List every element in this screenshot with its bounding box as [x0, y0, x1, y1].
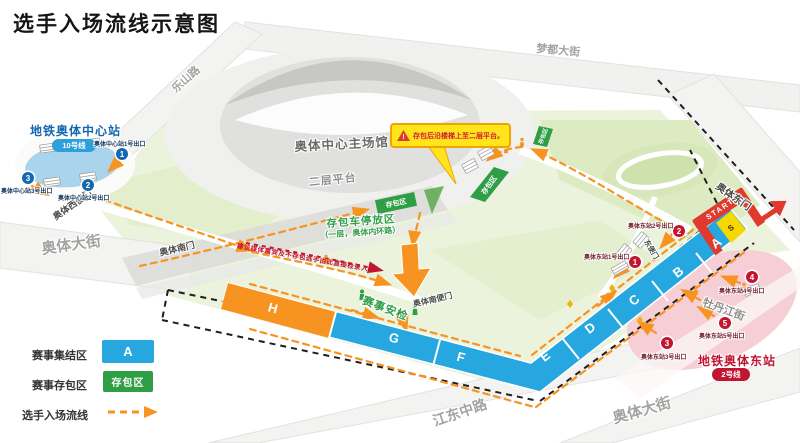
bag-drop-callout-text: 存包后沿楼梯上至二层平台。	[413, 131, 504, 141]
legend-bag-label: 赛事存包区	[32, 377, 87, 393]
metro-east-exit-5-badge: 5	[719, 317, 731, 329]
metro-west-exit-3-label: 奥体中心站3号出口	[1, 186, 52, 195]
metro-west-exit-2-badge: 2	[82, 179, 94, 191]
metro-east-line-badge: 2号线	[712, 368, 750, 381]
metro-east-exit-1-badge: 1	[629, 256, 641, 268]
page-title: 选手入场流线示意图	[13, 8, 220, 38]
metro-east-name: 地铁奥体东站	[698, 352, 776, 369]
metro-east-exit-4-label: 奥体东站4号出口	[719, 286, 764, 295]
bag-drop-callout: ! 存包后沿楼梯上至二层平台。	[390, 123, 511, 148]
legend-flow-arrow	[106, 404, 160, 420]
walking-person-icon	[606, 293, 610, 301]
metro-west-exit-2-label: 奥体中心站2号出口	[58, 193, 109, 202]
warning-triangle-icon: !	[397, 130, 410, 141]
legend-assembly-swatch: A	[102, 340, 154, 363]
metro-west-exit-3-badge: 3	[22, 172, 34, 184]
legend-bag-swatch: 存包区	[103, 371, 153, 392]
metro-east-exit-4-badge: 4	[746, 271, 758, 283]
metro-west-line-badge: 10号线	[52, 139, 96, 152]
walking-person-icon	[520, 138, 524, 146]
metro-west-name: 地铁奥体中心站	[30, 122, 121, 139]
walking-person-icon	[694, 286, 698, 294]
metro-east-exit-3-label: 奥体东站3号出口	[641, 352, 686, 361]
metro-east-exit-2-badge: 2	[673, 225, 685, 237]
legend-flow-label: 选手入场流线	[22, 407, 88, 423]
metro-east-exit-1-label: 奥体东站1号出口	[584, 252, 629, 261]
metro-east-exit-5-label: 奥体东站5号出口	[699, 331, 744, 340]
metro-west-exit-1-badge: 1	[116, 148, 128, 160]
legend-assembly-label: 赛事集结区	[32, 347, 87, 363]
metro-west-exit-1-label: 奥体中心站1号出口	[94, 139, 145, 148]
metro-east-exit-3-badge: 3	[661, 337, 673, 349]
venue-flow-map: 存包区 存包区 存包区 选手入场流线示意图 乐山路 梦都大街 奥体大街 江东中路…	[0, 0, 800, 443]
metro-east-exit-2-label: 奥体东站2号出口	[628, 221, 673, 230]
